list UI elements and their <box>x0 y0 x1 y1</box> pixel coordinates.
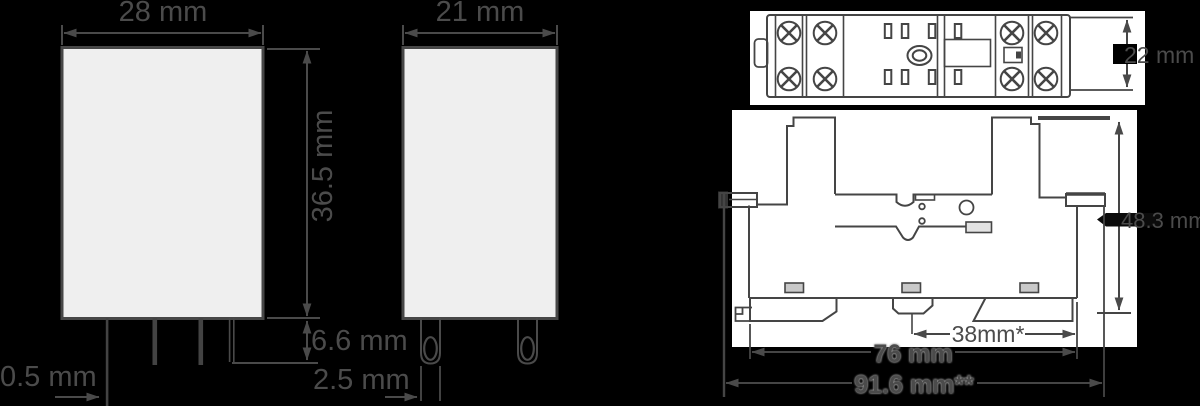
dim-label-relay-front-pin-length: 6.6 mm <box>311 326 408 356</box>
dim-label-socket-top-depth: 22 mm <box>1124 43 1194 67</box>
dim-label-relay-front-pin-thickness: 0.5 mm <box>0 362 97 392</box>
dim-label-socket-front-height: 48.3 mm <box>1121 209 1200 232</box>
relay-dimension-drawing: 28 mm 21 mm 36.5 mm 6.6 mm 0.5 mm 2.5 mm… <box>0 0 1200 406</box>
socket-top-view-drawing <box>750 11 1145 105</box>
dim-label-socket-overall-width: 91.6 mm** <box>834 372 994 398</box>
dim-label-socket-body-width: 76 mm <box>853 341 973 367</box>
relay-front-pins <box>106 318 203 406</box>
dim-label-relay-front-width: 28 mm <box>103 0 223 27</box>
dim-label-relay-side-width: 21 mm <box>420 0 540 27</box>
dim-label-relay-side-pin-thickness: 2.5 mm <box>313 365 410 395</box>
relay-side-view-drawing <box>385 25 557 401</box>
relay-front-view-drawing <box>55 25 320 406</box>
dim-label-relay-front-height: 36.5 mm <box>308 103 338 229</box>
